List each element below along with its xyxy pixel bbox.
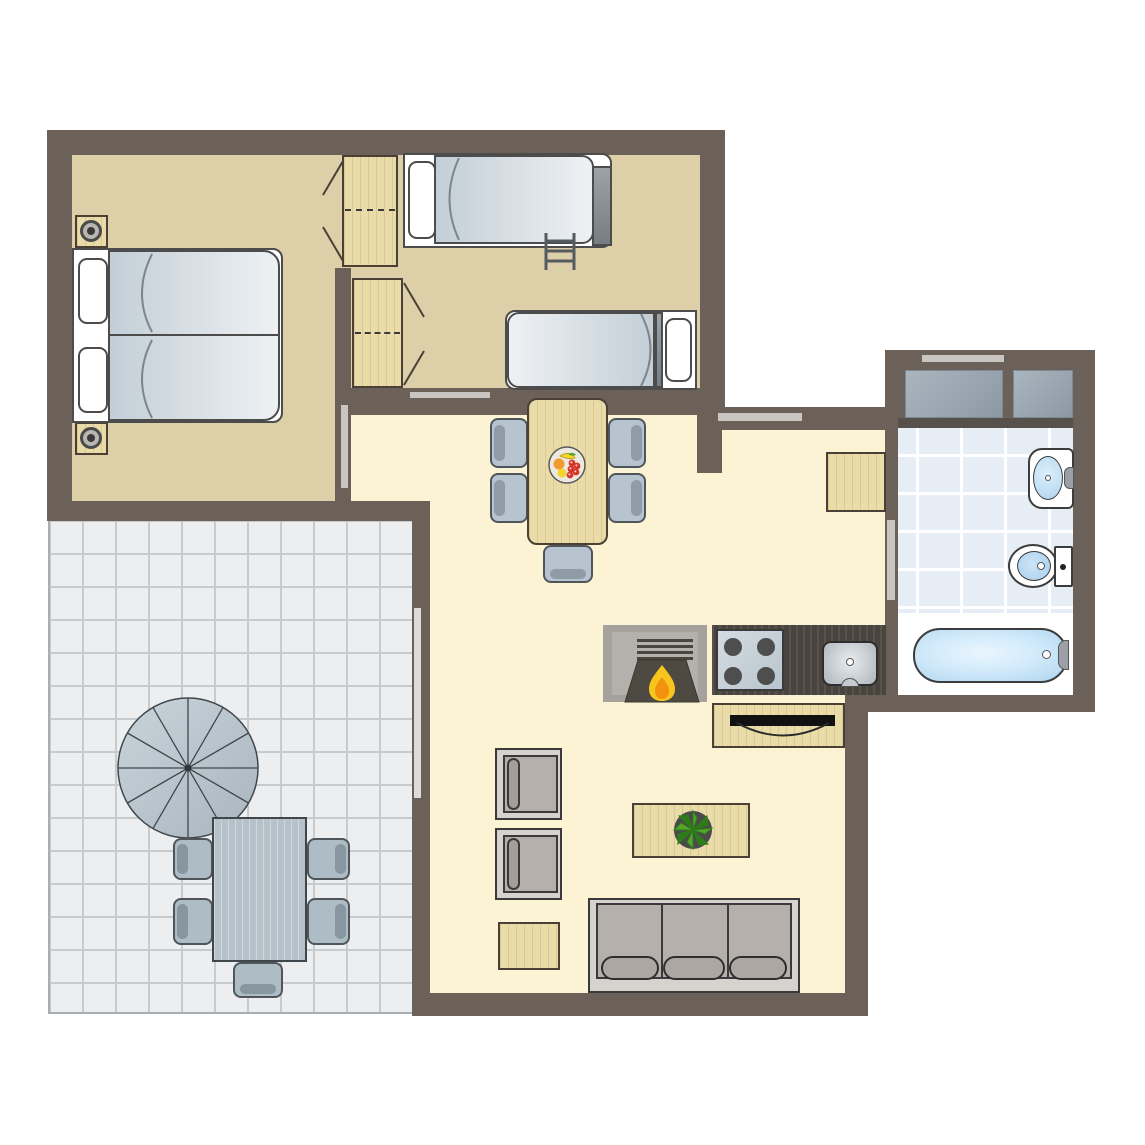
- burner: [724, 667, 742, 685]
- toilet-drain: [1037, 562, 1045, 570]
- dining-chair: [608, 418, 646, 468]
- bathroom-door-opening: [887, 520, 895, 600]
- wardrobe-2-dashline: [355, 332, 400, 334]
- toilet-bowl-inner: [1017, 551, 1051, 581]
- bunk-bed-footboard: [592, 166, 612, 246]
- fireplace-vent-line: [637, 639, 693, 642]
- bathtub-drain: [1042, 650, 1051, 659]
- lamp-center: [87, 227, 95, 235]
- dining-chair: [543, 545, 593, 583]
- wall-bedroom2-right: [700, 130, 725, 415]
- side-table: [498, 922, 560, 970]
- dining-chair: [490, 473, 528, 523]
- wall-dining-stub: [697, 388, 722, 473]
- bathroom-shelf-edge: [898, 418, 1073, 428]
- wall-bathroom-right: [1073, 350, 1095, 712]
- armchair-backrest: [507, 838, 520, 890]
- fireplace-stove-icon: [622, 657, 702, 703]
- wardrobe-bedroom-1: [342, 155, 398, 267]
- single-bed-blanket: [507, 312, 655, 388]
- kitchen-sink-drain: [846, 658, 854, 666]
- outdoor-chair: [307, 838, 350, 880]
- toilet-flush-button: [1060, 564, 1066, 570]
- cabinet-block: [1013, 370, 1073, 418]
- outdoor-chair: [173, 898, 213, 945]
- washbasin-drain: [1045, 475, 1051, 481]
- sofa-seat-cushion: [663, 956, 725, 980]
- tv-icon: [730, 715, 835, 726]
- mattress-split: [108, 334, 280, 336]
- pillow: [78, 347, 108, 413]
- pillow: [665, 318, 692, 382]
- lamp-center: [87, 434, 95, 442]
- fireplace-vent-line: [637, 651, 693, 654]
- washing-machine: [905, 370, 1003, 418]
- outdoor-table: [212, 817, 307, 962]
- armchair-backrest: [507, 758, 520, 810]
- bedroom-2-door-opening: [410, 392, 490, 398]
- wall-living-right: [845, 695, 868, 1016]
- burner: [757, 638, 775, 656]
- washbasin-faucet-icon: [1064, 467, 1074, 489]
- potted-plant-icon: [671, 808, 715, 852]
- wall-top: [47, 130, 725, 155]
- doormat: [826, 452, 886, 512]
- fruit-bowl-icon: [548, 446, 586, 484]
- wall-left: [47, 130, 72, 521]
- bathtub-faucet-icon: [1058, 640, 1069, 670]
- bedroom-1-door-opening: [341, 405, 348, 488]
- outdoor-chair: [307, 898, 350, 945]
- floor-plan: [0, 0, 1145, 1145]
- burner: [724, 638, 742, 656]
- outdoor-chair: [173, 838, 213, 880]
- burner: [757, 667, 775, 685]
- wall-bedroom1-bottom: [47, 501, 430, 521]
- dining-chair: [490, 418, 528, 468]
- terrace-sliding-door: [414, 608, 421, 798]
- hall-entrance-window: [718, 413, 802, 421]
- sofa-seat-cushion: [601, 956, 659, 980]
- single-bed-headrail: [655, 312, 663, 388]
- wall-living-bottom: [430, 993, 868, 1016]
- dining-chair: [608, 473, 646, 523]
- pillow: [408, 161, 436, 239]
- sofa-seat-cushion: [729, 956, 787, 980]
- outdoor-chair: [233, 962, 283, 998]
- bathroom-window: [922, 355, 1004, 362]
- bunk-bed-blanket: [434, 155, 594, 244]
- wall-bathroom-bottom: [845, 695, 1095, 712]
- fireplace-vent-line: [637, 645, 693, 648]
- pillow: [78, 258, 108, 324]
- wardrobe-1-dashline: [345, 209, 395, 211]
